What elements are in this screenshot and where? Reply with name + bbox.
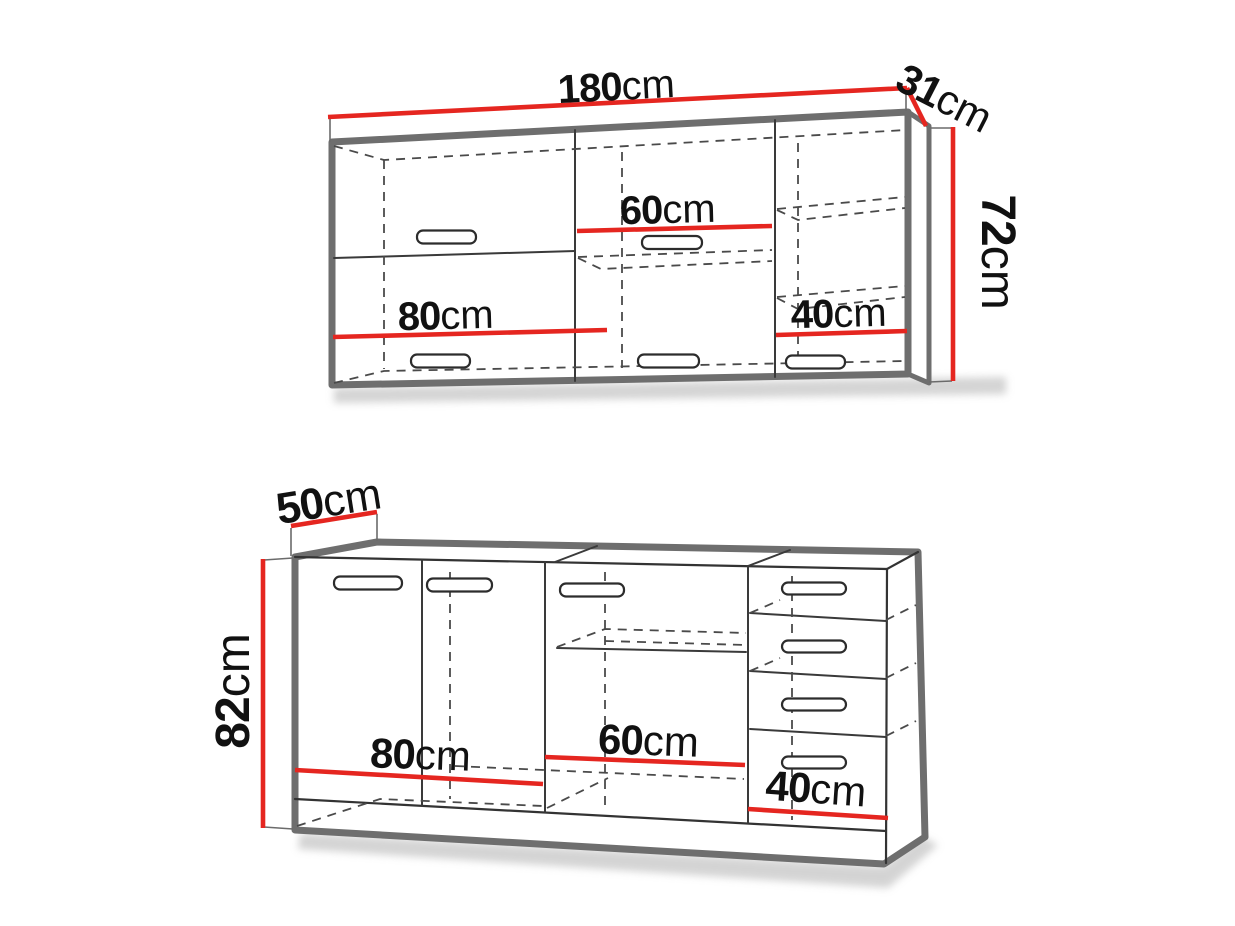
door-handle: [334, 577, 402, 590]
wall-cabinet-front: [332, 112, 908, 385]
base-section-right-label: 40cm: [764, 762, 868, 816]
wall-section-right-label: 40cm: [790, 291, 887, 337]
wall-width-label: 180cm: [557, 62, 676, 112]
wall-height-label: 72cm: [971, 194, 1024, 309]
drawer-handle: [782, 641, 846, 653]
base-section-left-label: 80cm: [369, 729, 471, 779]
drawer-handle: [782, 583, 846, 595]
wall-section-middle-label: 60cm: [619, 187, 716, 233]
cabinet-dimension-diagram: 180cm 31cm 72cm 80cm 60cm 40cm: [0, 0, 1235, 926]
wall-section-left-label: 80cm: [397, 293, 494, 339]
base-cabinet: 50cm 82cm 80cm 60cm 40cm: [207, 469, 938, 888]
door-handle: [642, 236, 702, 249]
base-section-middle-label: 60cm: [597, 715, 699, 765]
door-handle: [411, 355, 470, 368]
wall-cabinet: 180cm 31cm 72cm 80cm 60cm 40cm: [328, 54, 1024, 403]
base-height-label: 82cm: [207, 633, 260, 748]
diagram-canvas: 180cm 31cm 72cm 80cm 60cm 40cm: [0, 0, 1235, 926]
door-handle: [417, 231, 476, 244]
drawer-handle: [782, 699, 846, 711]
door-handle: [786, 356, 845, 369]
door-handle: [638, 355, 699, 368]
door-handle: [427, 579, 492, 592]
base-depth-label: 50cm: [273, 469, 385, 534]
door-handle: [560, 584, 624, 597]
